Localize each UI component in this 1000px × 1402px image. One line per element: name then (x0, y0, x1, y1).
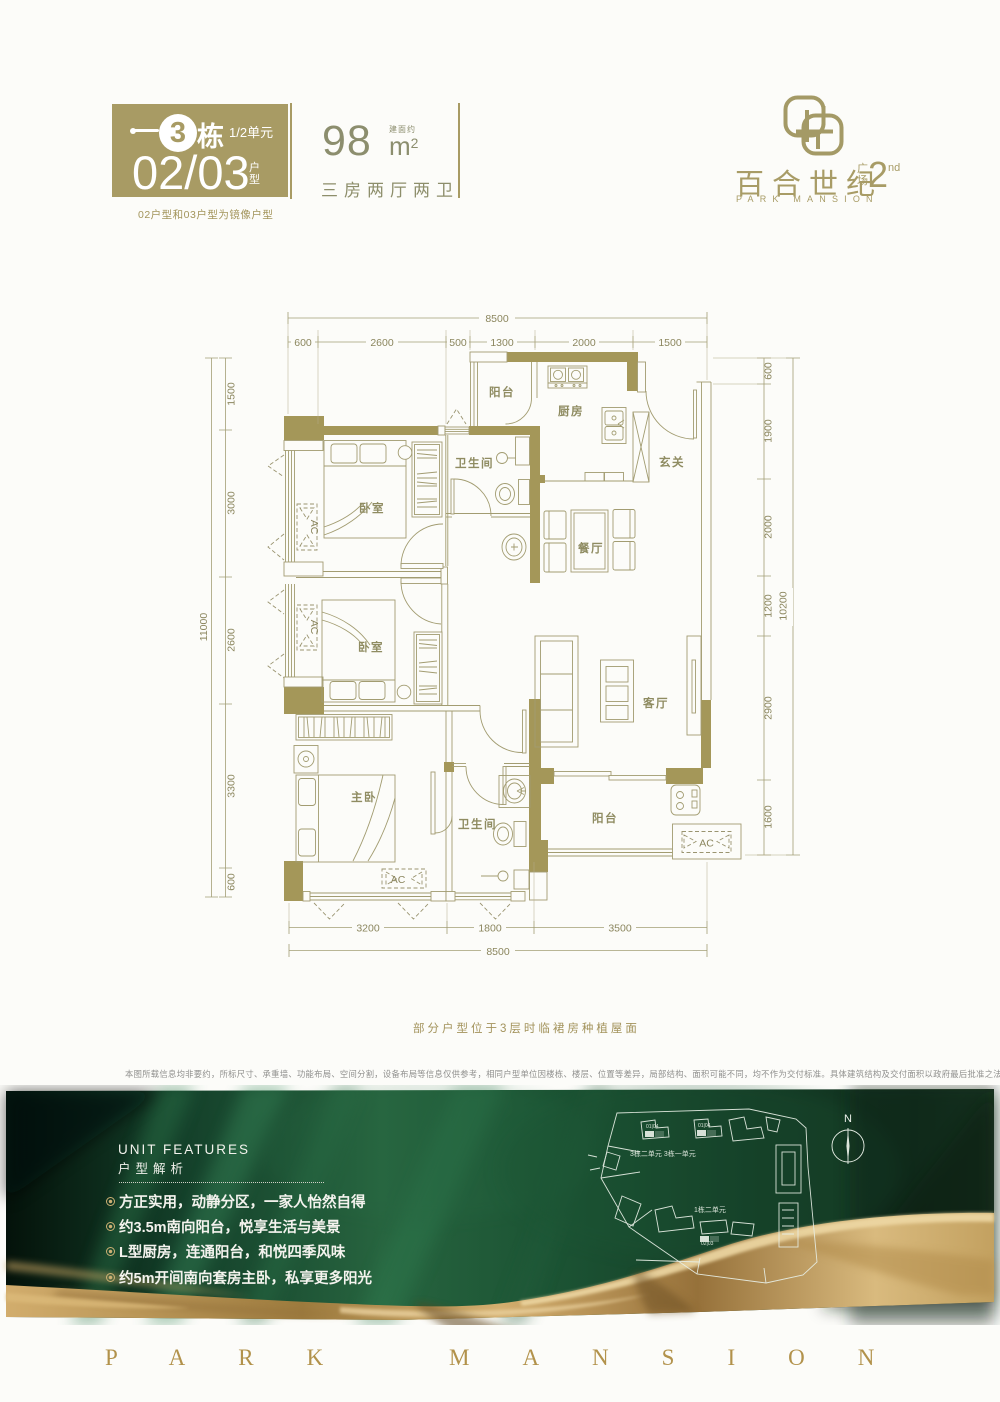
svg-text:10200: 10200 (778, 591, 790, 620)
svg-text:AC: AC (699, 838, 714, 850)
svg-text:3栋二单元 3栋一单元: 3栋二单元 3栋一单元 (630, 1149, 696, 1158)
svg-text:3200: 3200 (356, 923, 380, 935)
svg-text:2000: 2000 (763, 515, 775, 539)
svg-text:02|03: 02|03 (701, 1241, 714, 1247)
svg-text:卧室: 卧室 (358, 640, 384, 654)
svg-text:1500: 1500 (658, 337, 682, 349)
svg-text:600: 600 (226, 873, 238, 891)
svg-text:AC: AC (391, 874, 406, 886)
svg-text:01|04: 01|04 (698, 1123, 711, 1129)
svg-text:2600: 2600 (370, 337, 394, 349)
svg-text:1300: 1300 (490, 337, 514, 349)
svg-text:AC: AC (308, 520, 320, 535)
svg-text:餐厅: 餐厅 (577, 541, 604, 555)
svg-text:客厅: 客厅 (642, 696, 669, 710)
svg-text:AC: AC (308, 620, 320, 635)
svg-text:卧室: 卧室 (359, 501, 385, 515)
svg-text:N: N (844, 1113, 852, 1125)
svg-text:1600: 1600 (763, 805, 775, 829)
svg-text:1500: 1500 (226, 382, 238, 406)
svg-text:阳台: 阳台 (489, 385, 515, 399)
svg-text:3000: 3000 (226, 491, 238, 515)
svg-text:卫生间: 卫生间 (455, 456, 494, 470)
svg-text:3500: 3500 (608, 923, 632, 935)
svg-text:主卧: 主卧 (351, 790, 377, 804)
svg-text:厨房: 厨房 (558, 404, 584, 418)
svg-text:2600: 2600 (226, 628, 238, 652)
svg-text:3300: 3300 (226, 774, 238, 798)
svg-text:2000: 2000 (572, 337, 596, 349)
svg-text:1栋二单元: 1栋二单元 (694, 1205, 726, 1214)
svg-text:8500: 8500 (485, 313, 509, 325)
svg-text:玄关: 玄关 (659, 455, 685, 469)
svg-text:600: 600 (294, 337, 312, 349)
svg-text:1200: 1200 (763, 594, 775, 618)
svg-text:500: 500 (449, 337, 467, 349)
svg-text:01|04: 01|04 (646, 1124, 659, 1130)
svg-text:600: 600 (763, 362, 775, 380)
svg-text:11000: 11000 (198, 613, 210, 642)
svg-text:卫生间: 卫生间 (458, 817, 497, 831)
svg-text:8500: 8500 (486, 946, 510, 958)
svg-text:1800: 1800 (478, 923, 502, 935)
svg-text:2900: 2900 (763, 696, 775, 720)
svg-text:阳台: 阳台 (592, 811, 618, 825)
svg-text:1900: 1900 (763, 419, 775, 443)
